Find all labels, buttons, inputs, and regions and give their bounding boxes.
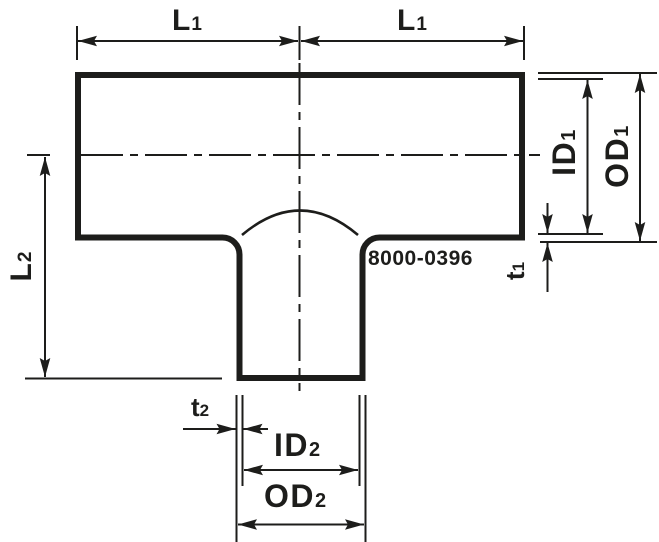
dim-label-l1-left: L1 — [172, 4, 203, 37]
tee-fitting-drawing: L1 L1 L2 ID1 OD1 t1 t2 ID2 OD2 8000-0396 — [0, 0, 659, 542]
dim-label-t1: t1 — [500, 262, 530, 280]
dim-l1 — [77, 26, 524, 60]
dim-label-od2: OD2 — [264, 478, 328, 514]
dim-label-od1: OD1 — [599, 124, 635, 188]
part-number: 8000-0396 — [368, 247, 473, 270]
dim-label-t2: t2 — [191, 392, 209, 422]
dim-label-id1: ID1 — [546, 128, 582, 176]
dim-label-l2: L2 — [5, 251, 38, 282]
pipe-bottom-left-edge-and-branch-left-wall — [75, 238, 240, 376]
dim-label-id2: ID2 — [274, 427, 322, 463]
dim-label-l1-right: L1 — [397, 4, 428, 37]
dim-id1-od1-t1 — [538, 73, 657, 292]
tee-fitting-diagram-canvas: L1 L1 L2 ID1 OD1 t1 t2 ID2 OD2 8000-0396 — [0, 0, 659, 542]
dim-l2 — [25, 155, 222, 379]
dim-id2-od2-t2 — [183, 395, 366, 542]
